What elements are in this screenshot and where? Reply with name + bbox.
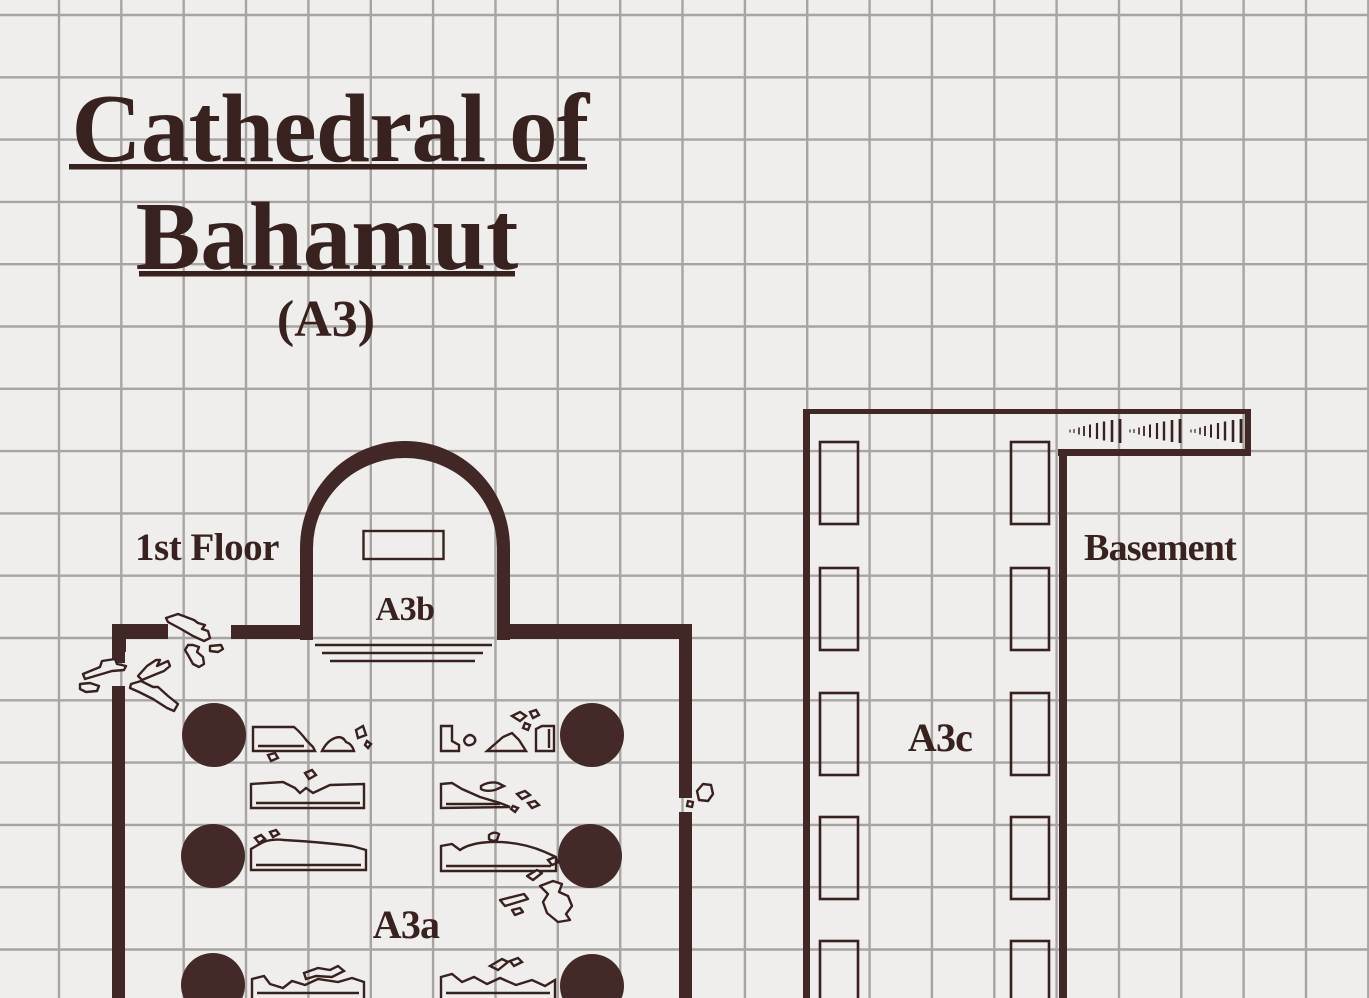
svg-text:1st Floor: 1st Floor [135,526,279,569]
svg-text:A3a: A3a [373,902,440,947]
svg-text:A3c: A3c [908,715,972,760]
svg-text:A3b: A3b [376,591,435,628]
svg-text:(A3): (A3) [277,291,375,348]
svg-text:Basement: Basement [1084,527,1237,569]
